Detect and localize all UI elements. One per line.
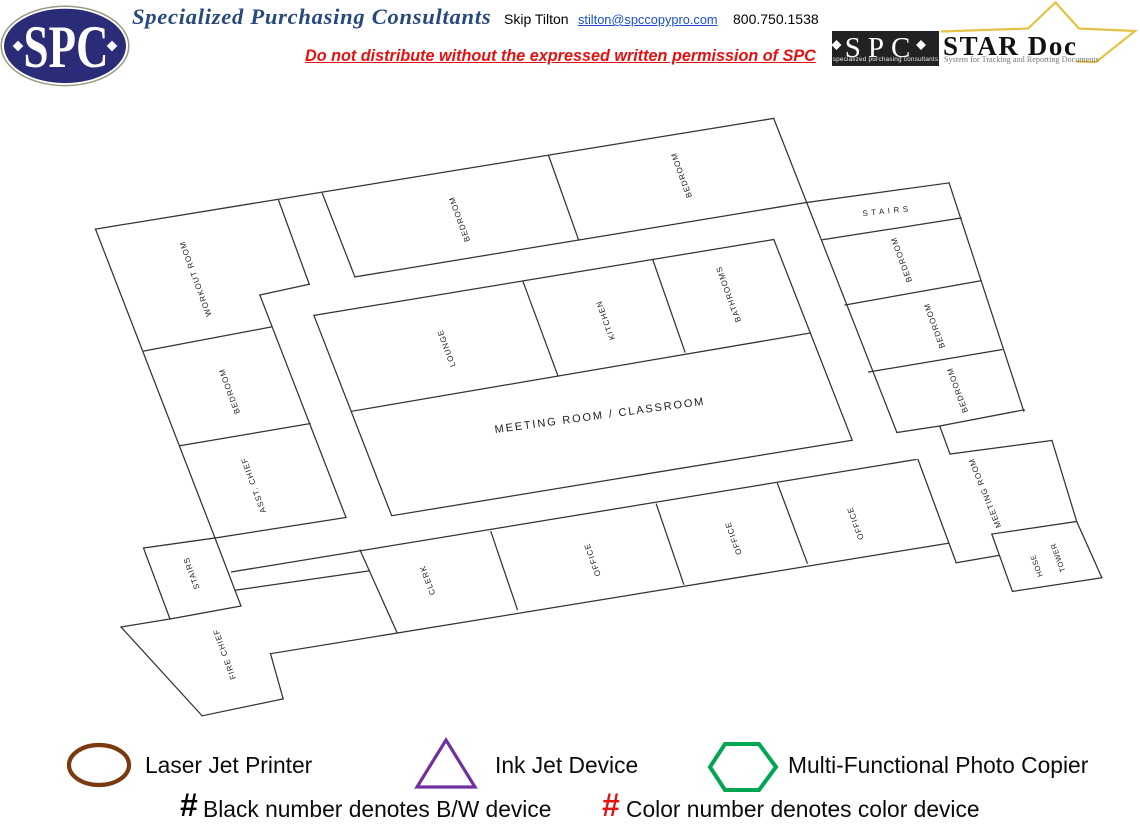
svg-text:OFFICE: OFFICE [582, 542, 602, 578]
svg-text:WORKOUT ROOM: WORKOUT ROOM [178, 240, 214, 318]
svg-text:BEDROOM: BEDROOM [447, 195, 472, 243]
svg-text:BEDROOM: BEDROOM [669, 151, 694, 199]
svg-text:KITCHEN: KITCHEN [594, 299, 617, 341]
svg-text:CLERK: CLERK [418, 564, 437, 596]
svg-text:FIRE CHIEF: FIRE CHIEF [211, 627, 238, 680]
svg-text:MEETING ROOM / CLASSROOM: MEETING ROOM / CLASSROOM [494, 396, 706, 436]
svg-text:HOSE: HOSE [1028, 553, 1044, 578]
svg-text:BEDROOM: BEDROOM [922, 302, 947, 350]
svg-text:ASST. CHIEF: ASST. CHIEF [239, 456, 267, 514]
svg-text:BEDROOM: BEDROOM [945, 366, 970, 414]
svg-text:LOUNGE: LOUNGE [436, 328, 458, 368]
svg-text:BEDROOM: BEDROOM [217, 367, 242, 415]
svg-text:BATHROOMS: BATHROOMS [714, 265, 743, 324]
svg-text:TOWER: TOWER [1049, 542, 1068, 574]
svg-text:OFFICE: OFFICE [723, 520, 743, 556]
svg-text:BEDROOM: BEDROOM [889, 236, 914, 284]
svg-text:STAIRS: STAIRS [862, 204, 912, 218]
svg-text:OFFICE: OFFICE [845, 505, 865, 541]
svg-text:STAIRS: STAIRS [182, 556, 202, 591]
svg-text:MEETING ROOM: MEETING ROOM [967, 457, 1003, 529]
